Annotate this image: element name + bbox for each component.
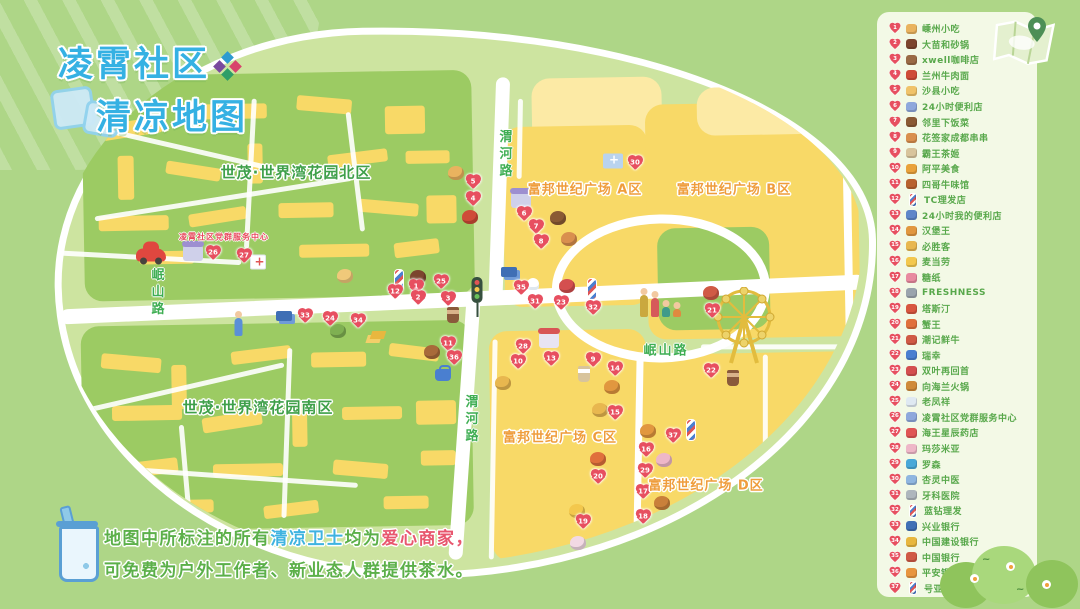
legend-item: 33兴业银行 (889, 519, 1031, 535)
legend-heart-number: 17 (889, 272, 901, 283)
squiggle-decoration: ~ (1016, 584, 1024, 595)
legend-heart-number: 36 (889, 567, 901, 578)
bottom-note: 地图中所标注的所有清凉卫士均为爱心商家， 可免费为户外工作者、新业态人群提供茶水… (104, 524, 474, 581)
legend-item: 21潮记鲜牛 (889, 332, 1031, 348)
legend-item-label: 必胜客 (922, 240, 951, 253)
legend-item-label: 麦当劳 (922, 255, 951, 268)
crab-icon (906, 319, 917, 329)
building-block (112, 405, 182, 421)
legend-heart-number: 6 (889, 101, 901, 112)
fresh-cup-icon (906, 288, 917, 298)
legend-item: 20蟹王 (889, 316, 1031, 332)
legend-heart-number: 31 (889, 490, 901, 501)
store-books-icon (906, 210, 917, 220)
legend-heart-number: 32 (889, 505, 901, 516)
bank-card-red-icon (906, 552, 917, 562)
bank-gold-icon (906, 537, 917, 547)
legend-item: 15必胜客 (889, 239, 1031, 255)
diamond-icon (906, 397, 917, 407)
legend-heart-number: 11 (889, 179, 901, 190)
map-title: 凌霄社区 清凉地图 (58, 36, 248, 140)
legend-item: 32蓝钻理发 (889, 503, 1031, 519)
legend-item: 16麦当劳 (889, 254, 1031, 270)
legend-heart-number: 1 (889, 23, 901, 34)
noodle-bowl-icon (906, 70, 917, 80)
flower-icon (1006, 562, 1015, 571)
flower-icon (970, 574, 979, 583)
dental-tools-icon (906, 490, 917, 500)
legend-item-label: 沙县小吃 (922, 84, 960, 97)
title-line-1: 凌霄社区 (58, 36, 248, 87)
legend-heart-number: 30 (889, 474, 901, 485)
legend-item-label: 蟹王 (922, 318, 941, 331)
legend-item-label: 海王星辰药店 (922, 426, 979, 439)
map-zone (629, 351, 865, 560)
legend-item-label: xwell咖啡店 (922, 53, 979, 66)
building-block (292, 403, 308, 447)
coffee-cup-icon (906, 55, 917, 65)
legend-heart-number: 9 (889, 148, 901, 159)
legend-item-label: 兰州牛肉面 (922, 69, 970, 82)
legend-heart-number: 5 (889, 85, 901, 96)
legend-item-label: 双叶再回首 (922, 364, 970, 377)
building-block (299, 244, 369, 258)
note-segment: 爱心商家 (382, 529, 456, 549)
legend-item: 27海王星辰药店 (889, 425, 1031, 441)
legend-item-label: 24小时我的便利店 (922, 209, 1002, 222)
legend-heart-number: 26 (889, 412, 901, 423)
legend-item-label: TC理发店 (924, 193, 966, 206)
legend-item-label: 蓝钻理发 (924, 504, 962, 517)
legend-heart-number: 34 (889, 536, 901, 547)
legend-item: 30杏灵中医 (889, 472, 1031, 488)
gov-building-icon (906, 412, 917, 422)
fries-icon (906, 257, 917, 267)
map-zone (489, 329, 650, 562)
legend-item-label: 老凤祥 (922, 395, 951, 408)
legend-item-label: 向海兰火锅 (922, 380, 970, 393)
map-zone (696, 86, 817, 136)
legend-item: 10阿平美食 (889, 161, 1031, 177)
building-block (421, 450, 456, 466)
legend-item: 5沙县小吃 (889, 83, 1031, 99)
store-front-icon (906, 459, 917, 469)
legend-item-label: 花签家成都串串 (922, 131, 989, 144)
legend-item-label: 糖纸 (922, 271, 941, 284)
legend-item: 18FRESHNESS (889, 285, 1031, 301)
legend-heart-number: 13 (889, 210, 901, 221)
note-segment: ， (456, 529, 475, 549)
legend-item-label: 罗森 (922, 458, 941, 471)
legend-heart-number: 12 (889, 194, 901, 205)
legend-item-label: 玛莎米亚 (922, 442, 960, 455)
legend-heart-number: 29 (889, 459, 901, 470)
legend-item: 24向海兰火锅 (889, 379, 1031, 395)
beef-plate-icon (906, 335, 917, 345)
legend-heart-number: 4 (889, 70, 901, 81)
skewers-icon (906, 133, 917, 143)
legend-heart-number: 16 (889, 256, 901, 267)
food-plate-icon (906, 164, 917, 174)
title-line-2: 清凉地图 (96, 89, 248, 140)
clay-pot-icon (906, 39, 917, 49)
barber-pole-icon (909, 504, 917, 518)
building-block (118, 156, 135, 200)
note-line-1: 地图中所标注的所有清凉卫士均为爱心商家， (104, 524, 474, 549)
cake-icon (906, 444, 917, 454)
legend-item-label: 四哥牛味馆 (922, 178, 970, 191)
legend-item-label: 霸王茶姬 (922, 147, 960, 160)
note-line-2: 可免费为户外工作者、新业态人群提供茶水。 (104, 556, 474, 581)
building-block (384, 496, 429, 510)
legend-item-label: 大苗和砂锅 (922, 38, 970, 51)
legend-heart-number: 8 (889, 132, 901, 143)
legend-item: 19塔斯汀 (889, 301, 1031, 317)
note-segment: 地图中所标注的所有 (104, 529, 271, 549)
legend-heart-number: 35 (889, 552, 901, 563)
legend-heart-number: 2 (889, 39, 901, 50)
bushes-decoration: ~ ~ (930, 540, 1080, 609)
minor-road (763, 355, 768, 555)
legend-item-label: 汉堡王 (922, 224, 951, 237)
legend-item: 22瑞幸 (889, 347, 1031, 363)
legend-heart-number: 21 (889, 334, 901, 345)
legend-item-label: 瑞幸 (922, 349, 941, 362)
legend-item: 25老凤祥 (889, 394, 1031, 410)
legend-item: 31牙科医院 (889, 487, 1031, 503)
legend-item: 29罗森 (889, 456, 1031, 472)
legend-heart-number: 24 (889, 381, 901, 392)
map-roads-layer (50, 19, 858, 33)
building-block (426, 195, 456, 224)
burger-icon (906, 226, 917, 236)
legend-item-label: FRESHNESS (922, 288, 986, 298)
note-segment: 均为 (345, 529, 382, 549)
snack-plate-icon (906, 86, 917, 96)
barber-pole-icon (909, 581, 917, 595)
legend-item-label: 24小时便利店 (922, 100, 983, 113)
legend-heart-number: 18 (889, 288, 901, 299)
legend-item: 23双叶再回首 (889, 363, 1031, 379)
legend-item: 12TC理发店 (889, 192, 1031, 208)
hotpot-icon (906, 381, 917, 391)
legend-item-label: 兴业银行 (922, 520, 960, 533)
legend-heart-number: 10 (889, 163, 901, 174)
legend-item: 624小时便利店 (889, 99, 1031, 115)
legend-item: 14汉堡王 (889, 223, 1031, 239)
map-zones-layer (50, 19, 858, 33)
building-block (385, 106, 425, 135)
pizza-icon (906, 241, 917, 251)
legend-item: 8花签家成都串串 (889, 130, 1031, 146)
building-block (342, 406, 402, 420)
ring-road (551, 213, 772, 365)
legend-item: 28玛莎米亚 (889, 441, 1031, 457)
legend-heart-number: 23 (889, 365, 901, 376)
pharmacy-cross-icon (906, 428, 917, 438)
legend-heart-number: 3 (889, 54, 901, 65)
note-segment: 清凉卫士 (271, 529, 345, 549)
cool-map-poster: { "title": {"line1": "凌霄社区", "line2": "清… (0, 0, 1080, 609)
legend-heart-number: 27 (889, 427, 901, 438)
flower-icon (1042, 580, 1051, 589)
legend-panel: 1嵊州小吃2大苗和砂锅3xwell咖啡店4兰州牛肉面5沙县小吃624小时便利店7… (877, 12, 1037, 597)
legend-item-label: 凌霄社区党群服务中心 (922, 411, 1017, 424)
tcm-clinic-icon (906, 475, 917, 485)
legend-item-label: 邻里下饭菜 (922, 116, 970, 129)
legend-item-label: 潮记鲜牛 (922, 333, 960, 346)
legend-item: 9霸王茶姬 (889, 145, 1031, 161)
candy-icon (906, 273, 917, 283)
bush-icon (1026, 560, 1078, 608)
building-block (154, 499, 214, 513)
legend-heart-number: 33 (889, 521, 901, 532)
legend-heart-number: 22 (889, 350, 901, 361)
legend-item: 7邻里下饭菜 (889, 114, 1031, 130)
legend-heart-number: 25 (889, 396, 901, 407)
bank-bag-icon (906, 568, 917, 578)
community-pinwheel-logo-icon (214, 53, 240, 79)
milk-tea-icon (906, 148, 917, 158)
barber-pole-icon (909, 193, 917, 207)
squiggle-decoration: ~ (982, 554, 990, 565)
beef-bowl-icon (906, 179, 917, 189)
home-dish-icon (906, 117, 917, 127)
legend-heart-number: 19 (889, 303, 901, 314)
legend-heart-number: 14 (889, 225, 901, 236)
legend-item-label: 塔斯汀 (922, 302, 951, 315)
building-block (278, 202, 333, 218)
legend-item-label: 嵊州小吃 (922, 22, 960, 35)
store-cube-icon (906, 102, 917, 112)
legend-item: 26凌霄社区党群服务中心 (889, 410, 1031, 426)
building-block (416, 400, 456, 425)
legend-heart-number: 15 (889, 241, 901, 252)
folded-map-pin-icon (993, 13, 1055, 73)
building-block (405, 150, 449, 164)
building-block (311, 352, 366, 368)
legend-item: 11四哥牛味馆 (889, 176, 1031, 192)
legend-heart-number: 28 (889, 443, 901, 454)
legend-heart-number: 37 (889, 583, 901, 594)
legend-item-label: 杏灵中医 (922, 473, 960, 486)
legend-heart-number: 7 (889, 117, 901, 128)
legend-item: 17糖纸 (889, 270, 1031, 286)
bubble-tea-cup-icon (56, 512, 98, 582)
legend-item-label: 阿平美食 (922, 162, 960, 175)
legend-item: 1324小时我的便利店 (889, 208, 1031, 224)
legend-heart-number: 20 (889, 319, 901, 330)
legend-item-label: 牙科医院 (922, 489, 960, 502)
burger-red-icon (906, 304, 917, 314)
steamer-basket-icon (906, 24, 917, 34)
liangpi-dish-icon (906, 366, 917, 376)
coffee-blue-icon (906, 350, 917, 360)
bank-card-blue-icon (906, 521, 917, 531)
legend-list: 1嵊州小吃2大苗和砂锅3xwell咖啡店4兰州牛肉面5沙县小吃624小时便利店7… (889, 21, 1031, 596)
title-text-1: 凌霄社区 (58, 45, 210, 85)
